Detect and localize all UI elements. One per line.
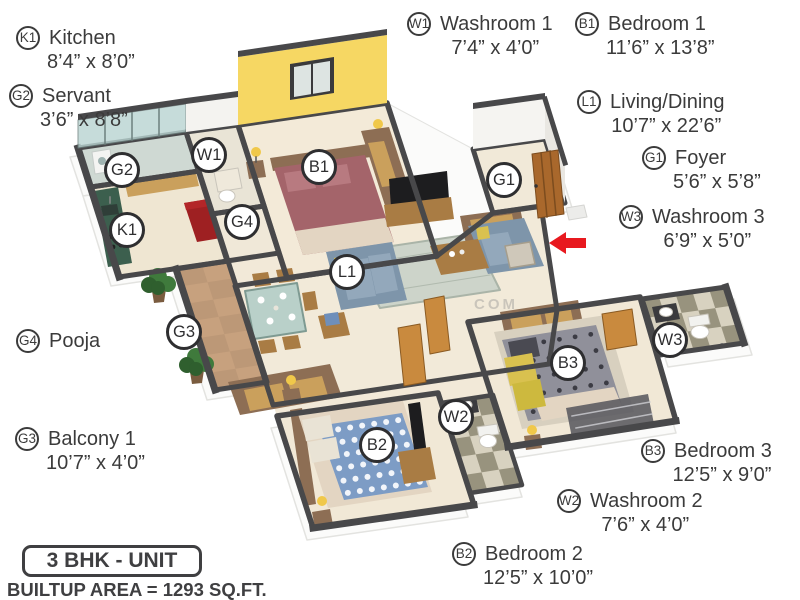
callout-foyer: G1 Foyer 5’6” x 5’8” bbox=[642, 146, 761, 193]
room-name: Servant bbox=[42, 85, 111, 107]
room-dims: 11’6” x 13’8” bbox=[575, 37, 715, 59]
room-name: Bedroom 2 bbox=[485, 543, 583, 565]
room-code-badge: W1 bbox=[407, 12, 431, 36]
room-marker-l1: L1 bbox=[329, 254, 365, 290]
room-dims: 7’4” x 4’0” bbox=[407, 37, 553, 59]
room-code-badge: W2 bbox=[557, 489, 581, 513]
watermark: COM bbox=[474, 296, 518, 313]
room-name: Balcony 1 bbox=[48, 428, 136, 450]
room-marker-b3: B3 bbox=[550, 345, 586, 381]
room-name: Washroom 1 bbox=[440, 13, 553, 35]
room-name: Bedroom 3 bbox=[674, 440, 772, 462]
room-marker-w3: W3 bbox=[652, 322, 688, 358]
unit-type-label: 3 BHK - UNIT bbox=[47, 549, 178, 573]
room-dims: 7’6” x 4’0” bbox=[557, 514, 703, 536]
room-marker-w2: W2 bbox=[438, 399, 474, 435]
room-name: Living/Dining bbox=[610, 91, 725, 113]
room-marker-g3: G3 bbox=[166, 314, 202, 350]
room-code-badge: G2 bbox=[9, 84, 33, 108]
room-name: Foyer bbox=[675, 147, 726, 169]
room-marker-b1: B1 bbox=[301, 149, 337, 185]
callout-kitchen: K1 Kitchen 8’4” x 8’0” bbox=[16, 26, 135, 73]
unit-type-box: 3 BHK - UNIT bbox=[22, 545, 202, 577]
builtup-area-text: BUILTUP AREA = 1293 SQ.FT. bbox=[7, 579, 267, 600]
room-dims: 10’7” x 22’6” bbox=[577, 115, 725, 137]
callout-washroom-2: W2 Washroom 2 7’6” x 4’0” bbox=[557, 489, 703, 536]
room-code-badge: B3 bbox=[641, 439, 665, 463]
room-dims: 12’5” x 10’0” bbox=[452, 567, 593, 589]
floor-plan-page: COM K1 G2 W1 B1 L1 G1 W3 G4 G3 B3 W2 B2 … bbox=[0, 0, 800, 600]
callout-bedroom-1: B1 Bedroom 1 11’6” x 13’8” bbox=[575, 12, 715, 59]
room-marker-k1: K1 bbox=[109, 212, 145, 248]
room-dims: 5’6” x 5’8” bbox=[642, 171, 761, 193]
room-code-badge: G1 bbox=[642, 146, 666, 170]
room-name: Pooja bbox=[49, 330, 100, 352]
callout-living-dining: L1 Living/Dining 10’7” x 22’6” bbox=[577, 90, 725, 137]
callout-bedroom-3: B3 Bedroom 3 12’5” x 9’0” bbox=[641, 439, 772, 486]
room-name: Washroom 3 bbox=[652, 206, 765, 228]
room-marker-w1: W1 bbox=[191, 137, 227, 173]
room-marker-g4: G4 bbox=[224, 204, 260, 240]
callout-servant: G2 Servant 3’6” x 8’8” bbox=[9, 84, 128, 131]
room-code-badge: K1 bbox=[16, 26, 40, 50]
room-marker-g1: G1 bbox=[486, 162, 522, 198]
room-marker-g2: G2 bbox=[104, 152, 140, 188]
callout-bedroom-2: B2 Bedroom 2 12’5” x 10’0” bbox=[452, 542, 593, 589]
room-code-badge: W3 bbox=[619, 205, 643, 229]
room-dims: 12’5” x 9’0” bbox=[641, 464, 772, 486]
room-code-badge: L1 bbox=[577, 90, 601, 114]
room-code-badge: B2 bbox=[452, 542, 476, 566]
room-code-badge: B1 bbox=[575, 12, 599, 36]
room-code-badge: G3 bbox=[15, 427, 39, 451]
room-code-badge: G4 bbox=[16, 329, 40, 353]
callout-washroom-3: W3 Washroom 3 6’9” x 5’0” bbox=[619, 205, 765, 252]
room-name: Washroom 2 bbox=[590, 490, 703, 512]
room-dims: 8’4” x 8’0” bbox=[16, 51, 135, 73]
callout-balcony-1: G3 Balcony 1 10’7” x 4’0” bbox=[15, 427, 145, 474]
room-dims: 3’6” x 8’8” bbox=[9, 109, 128, 131]
callout-pooja: G4 Pooja bbox=[16, 329, 100, 353]
callout-washroom-1: W1 Washroom 1 7’4” x 4’0” bbox=[407, 12, 553, 59]
room-name: Bedroom 1 bbox=[608, 13, 706, 35]
room-dims: 10’7” x 4’0” bbox=[15, 452, 145, 474]
room-dims: 6’9” x 5’0” bbox=[619, 230, 765, 252]
room-marker-b2: B2 bbox=[359, 427, 395, 463]
room-name: Kitchen bbox=[49, 27, 116, 49]
